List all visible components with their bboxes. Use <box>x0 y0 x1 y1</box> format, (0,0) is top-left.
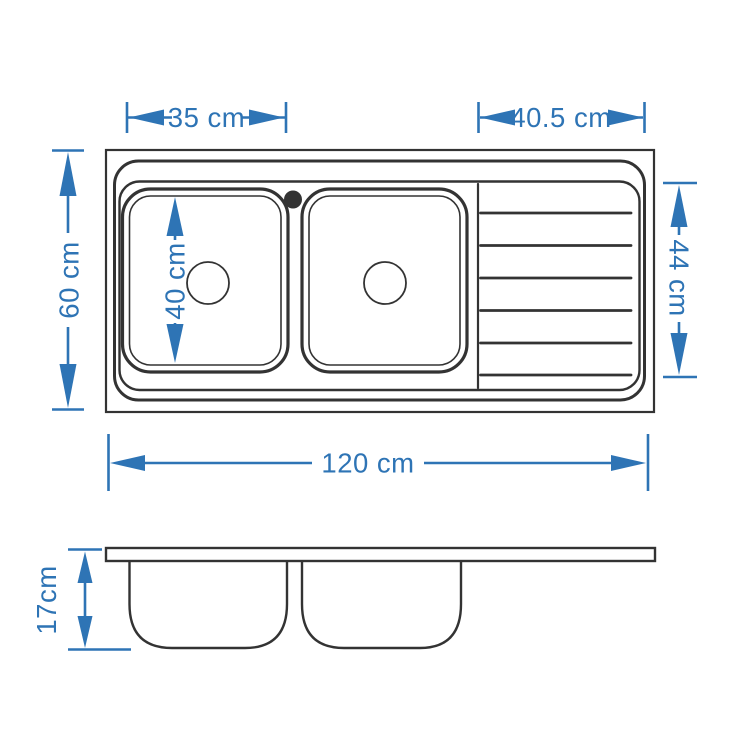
sink-deck-profile <box>106 548 655 561</box>
arrow-right-icon <box>608 110 643 126</box>
side-view <box>106 548 655 648</box>
arrow-down-icon <box>167 324 184 363</box>
arrow-up-icon <box>167 197 184 236</box>
left-drain-hole <box>187 262 229 304</box>
arrow-up-icon <box>78 552 93 584</box>
dim-label-overall-depth: 60 cm <box>54 241 85 318</box>
dim-label-bowl-height: 17cm <box>31 565 62 634</box>
drawing-canvas: 35 cm 40.5 cm 60 cm 40 cm 44 cm <box>0 0 750 750</box>
left-bowl-outer <box>123 189 289 372</box>
right-bowl <box>302 189 467 372</box>
sink-rim <box>115 161 645 400</box>
arrow-right-icon <box>611 455 646 471</box>
dim-label-overall-width: 120 cm <box>321 448 414 479</box>
dim-label-bowl-width: 35 cm <box>168 102 245 133</box>
dim-label-bowl-inner-depth: 40 cm <box>160 242 191 319</box>
right-bowl-profile <box>302 561 461 648</box>
right-drain-hole <box>364 262 406 304</box>
dimension-bowl-width: 35 cm <box>127 102 286 133</box>
dimension-drainboard-width: 40.5 cm <box>479 102 645 133</box>
dim-label-drainboard-width: 40.5 cm <box>510 102 611 133</box>
arrow-down-icon <box>671 333 688 375</box>
left-bowl <box>123 189 289 372</box>
dimension-bowl-inner-depth: 40 cm <box>160 197 191 363</box>
faucet-hole <box>284 191 302 209</box>
right-bowl-outer <box>302 189 467 372</box>
arrow-down-icon <box>60 364 77 408</box>
dimension-bowl-height: 17cm <box>31 550 131 650</box>
left-bowl-profile <box>130 561 288 648</box>
arrow-down-icon <box>78 616 93 648</box>
arrow-up-icon <box>60 152 77 196</box>
arrow-left-icon <box>129 110 164 126</box>
arrow-left-icon <box>110 455 145 471</box>
dimension-overall-depth: 60 cm <box>52 151 85 410</box>
drainboard <box>478 184 631 388</box>
left-bowl-inner <box>130 196 282 365</box>
arrow-right-icon <box>249 110 284 126</box>
dim-label-drainboard-depth: 44 cm <box>664 239 695 316</box>
sink-technical-drawing: 35 cm 40.5 cm 60 cm 40 cm 44 cm <box>0 0 750 750</box>
dimension-overall-width: 120 cm <box>109 434 649 491</box>
arrow-up-icon <box>671 185 688 227</box>
right-bowl-inner <box>309 196 460 365</box>
dimension-drainboard-depth: 44 cm <box>663 183 697 377</box>
